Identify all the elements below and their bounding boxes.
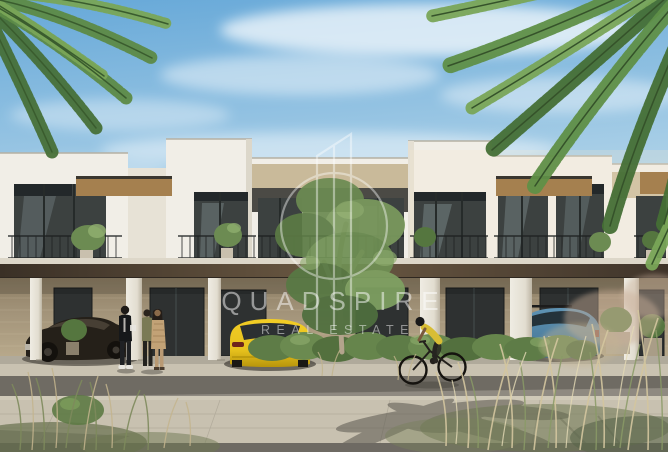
helmet bbox=[415, 317, 424, 326]
render-canvas: QUADSPIRE REAL ESTATE bbox=[0, 0, 668, 452]
gutter-line bbox=[0, 396, 668, 400]
watermark-tagline: REAL ESTATE bbox=[261, 323, 415, 337]
wheel bbox=[298, 360, 308, 367]
taillight bbox=[232, 342, 244, 347]
wheel bbox=[232, 360, 242, 367]
watermark-brand: QUADSPIRE bbox=[221, 286, 446, 316]
property-render: QUADSPIRE REAL ESTATE bbox=[0, 0, 668, 452]
roof-rails bbox=[532, 305, 572, 308]
window-unit bbox=[414, 192, 486, 262]
